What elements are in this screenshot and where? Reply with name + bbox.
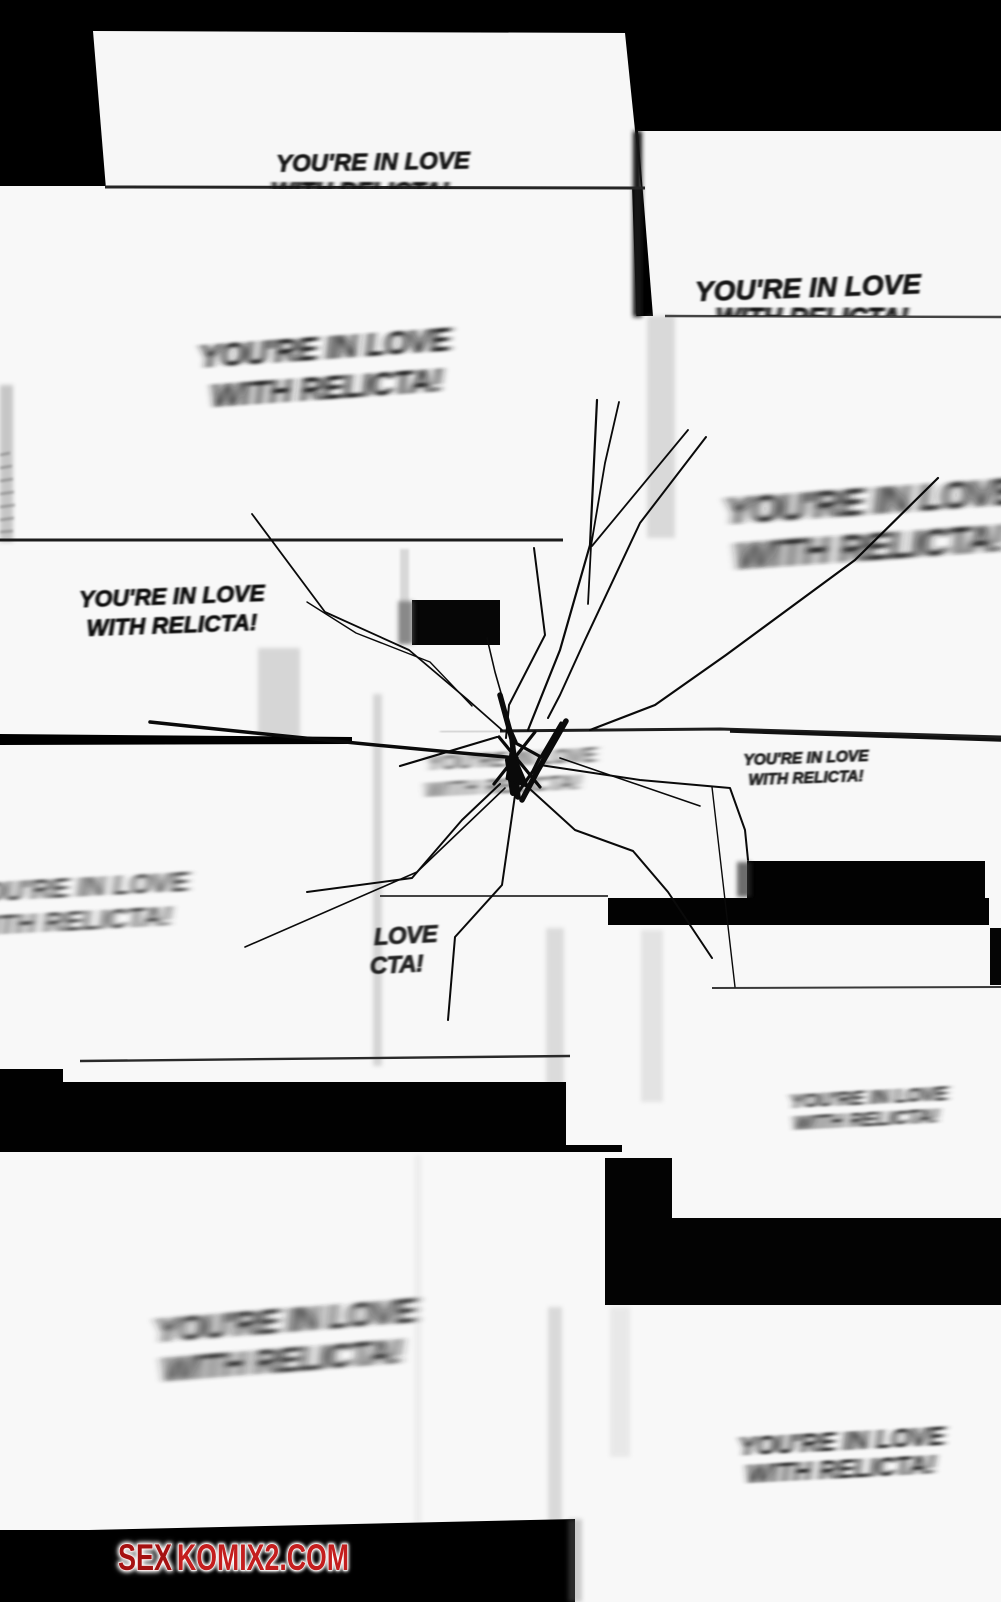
- svg-text:CTA!: CTA!: [369, 950, 424, 980]
- svg-text:KOMIX2.COM: KOMIX2.COM: [177, 1537, 349, 1578]
- svg-text:SEX: SEX: [118, 1537, 172, 1578]
- svg-text:LOVE: LOVE: [373, 921, 439, 951]
- svg-text:YOU'RE IN LOVE: YOU'RE IN LOVE: [276, 147, 471, 177]
